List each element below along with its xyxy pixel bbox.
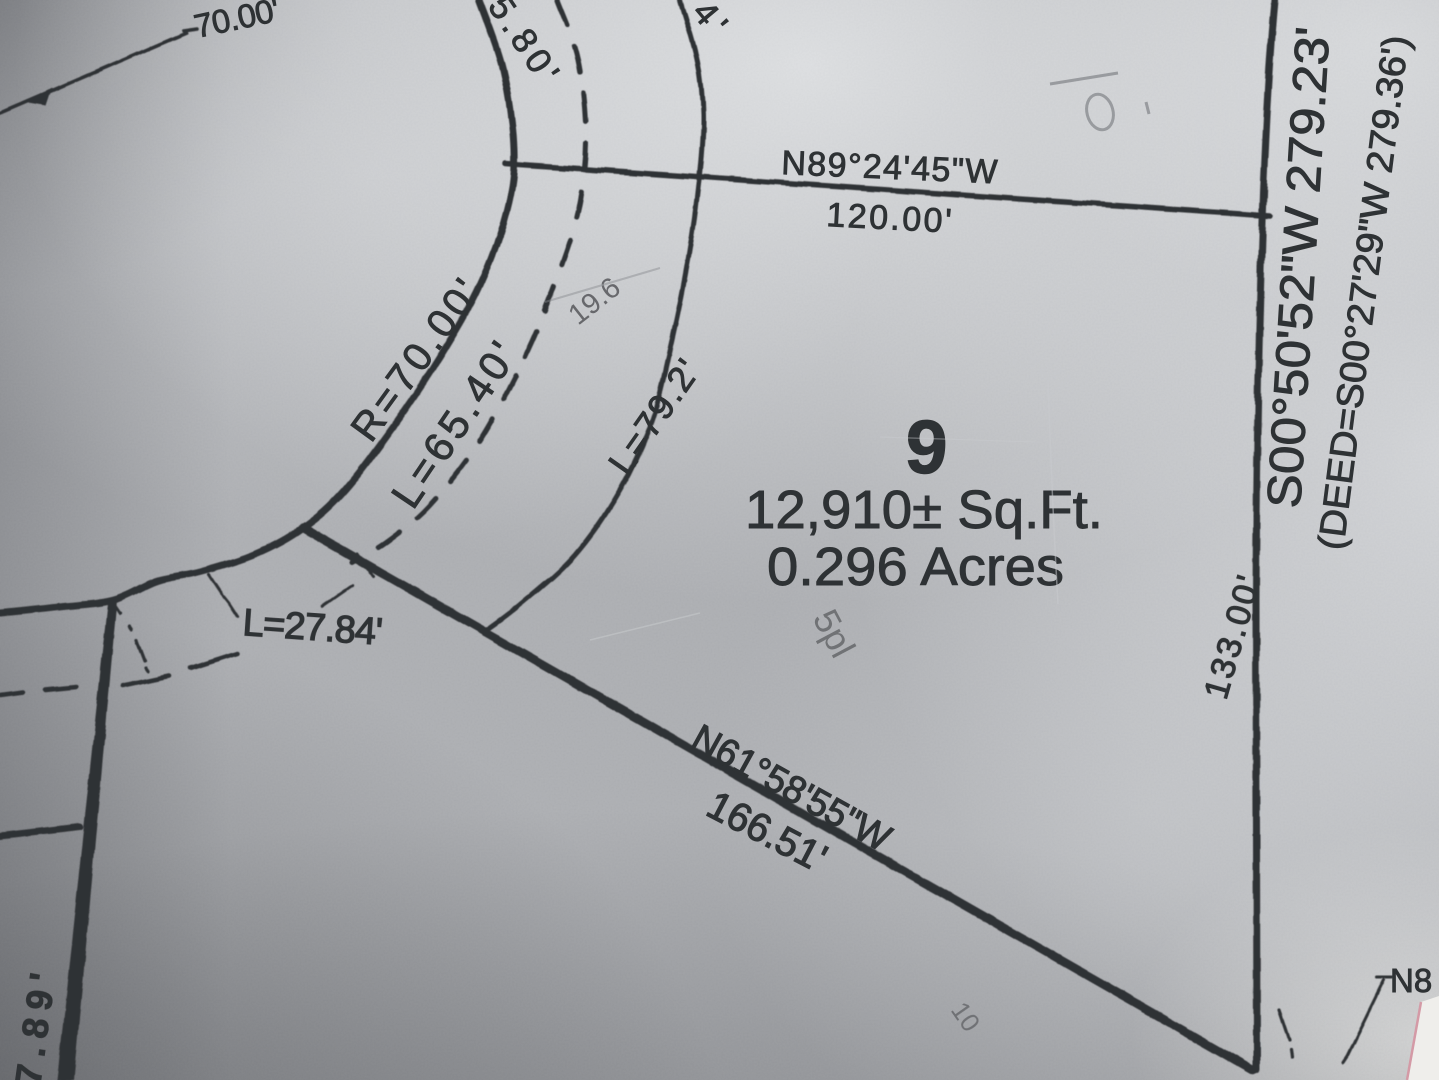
svg-text:9: 9 bbox=[903, 404, 950, 491]
svg-text:0.296 Acres: 0.296 Acres bbox=[767, 537, 1064, 597]
svg-text:N8: N8 bbox=[1390, 962, 1432, 999]
svg-text:12,910± Sq.Ft.: 12,910± Sq.Ft. bbox=[745, 480, 1103, 540]
